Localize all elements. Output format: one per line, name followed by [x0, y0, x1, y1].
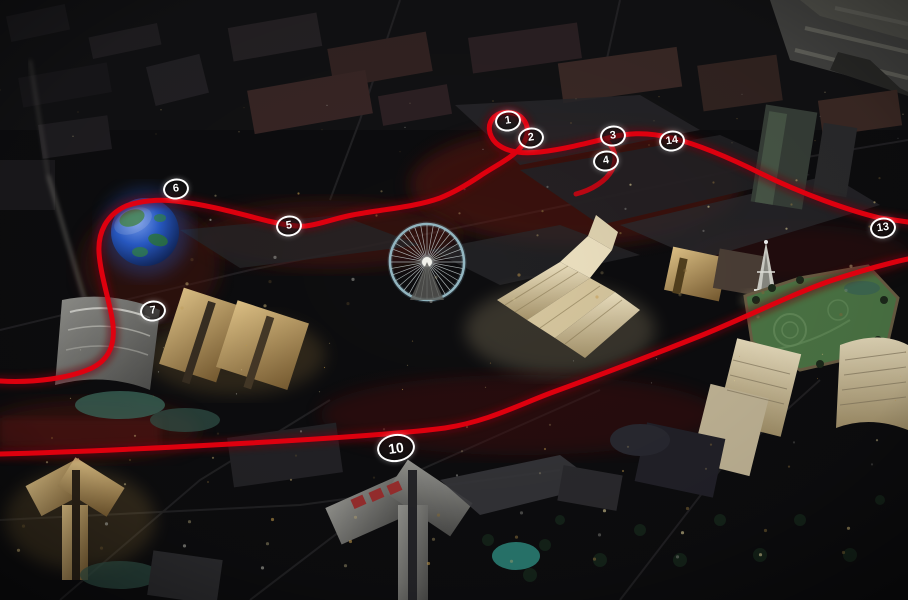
aerial-circuit-map: 1234567101314: [0, 0, 908, 600]
track-north-section: [0, 112, 908, 381]
track-strip-straight: [0, 259, 908, 454]
circuit-overlay: [0, 0, 908, 600]
